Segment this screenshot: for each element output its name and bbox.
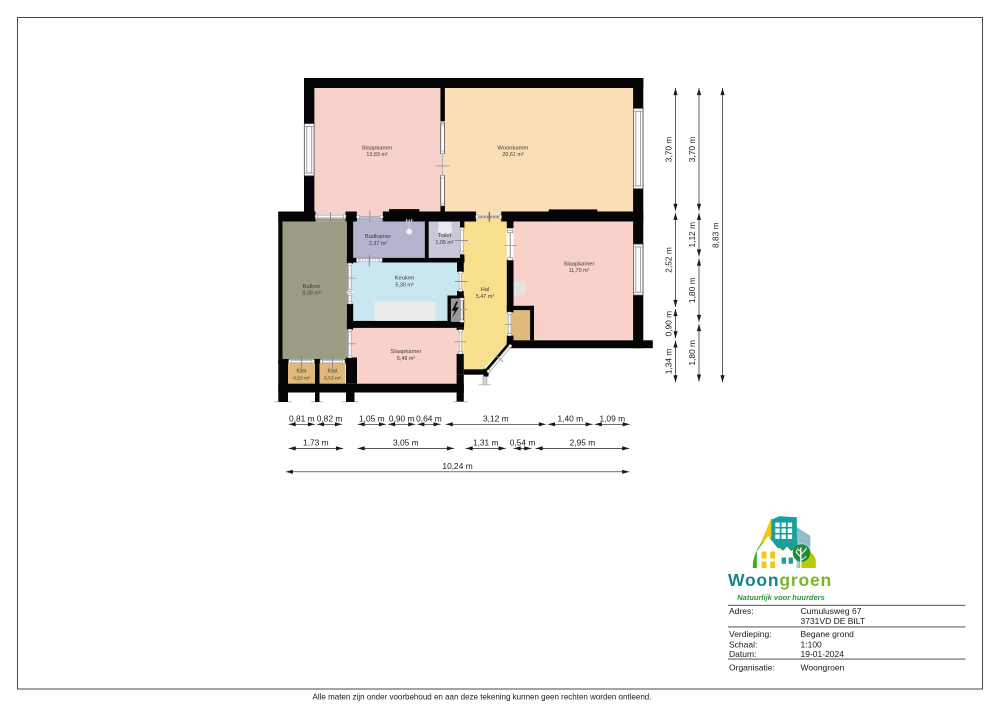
svg-text:10,24 m: 10,24 m bbox=[442, 461, 472, 471]
svg-text:3,12 m: 3,12 m bbox=[483, 413, 509, 423]
svg-text:11,70 m²: 11,70 m² bbox=[569, 268, 590, 274]
svg-text:0,90 m: 0,90 m bbox=[389, 413, 415, 423]
svg-text:Verdieping:: Verdieping: bbox=[729, 629, 772, 639]
svg-text:0,90 m: 0,90 m bbox=[664, 311, 674, 337]
svg-text:Hal: Hal bbox=[481, 287, 490, 293]
svg-text:2,52 m: 2,52 m bbox=[664, 247, 674, 273]
svg-text:1,34 m: 1,34 m bbox=[664, 349, 674, 375]
svg-text:2,95 m: 2,95 m bbox=[570, 438, 596, 448]
svg-text:5,30 m²: 5,30 m² bbox=[395, 282, 413, 288]
svg-text:Slaapkamer: Slaapkamer bbox=[391, 349, 422, 355]
svg-text:8,28 m²: 8,28 m² bbox=[302, 291, 320, 297]
svg-text:0,64 m: 0,64 m bbox=[416, 413, 442, 423]
svg-text:Kast: Kast bbox=[327, 369, 338, 375]
svg-text:1,05 m: 1,05 m bbox=[359, 413, 385, 423]
svg-text:Natuurlijk voor huurders: Natuurlijk voor huurders bbox=[737, 593, 825, 602]
svg-text:Organisatie:: Organisatie: bbox=[729, 663, 775, 673]
svg-text:3,70 m: 3,70 m bbox=[664, 137, 674, 163]
svg-text:Woonkamer: Woonkamer bbox=[497, 146, 528, 152]
svg-text:0,54 m: 0,54 m bbox=[510, 438, 536, 448]
svg-text:1,80 m: 1,80 m bbox=[687, 340, 697, 366]
svg-text:Adres:: Adres: bbox=[729, 606, 754, 616]
svg-text:Badkamer: Badkamer bbox=[365, 234, 391, 240]
svg-text:19-01-2024: 19-01-2024 bbox=[801, 649, 845, 659]
svg-text:1,73 m: 1,73 m bbox=[303, 438, 329, 448]
svg-text:Slaapkamer: Slaapkamer bbox=[362, 146, 393, 152]
svg-text:Woongroen: Woongroen bbox=[728, 570, 832, 590]
svg-text:3,70 m: 3,70 m bbox=[687, 137, 697, 163]
svg-text:1,31 m: 1,31 m bbox=[473, 438, 499, 448]
svg-text:3,05 m: 3,05 m bbox=[393, 438, 419, 448]
svg-text:5,47 m²: 5,47 m² bbox=[476, 294, 494, 300]
svg-text:Slaapkamer: Slaapkamer bbox=[564, 262, 595, 268]
svg-text:0,81 m: 0,81 m bbox=[289, 413, 315, 423]
svg-text:0,53 m²: 0,53 m² bbox=[324, 375, 341, 381]
svg-text:Toilet: Toilet bbox=[438, 233, 452, 239]
svg-text:1,40 m: 1,40 m bbox=[557, 413, 583, 423]
svg-text:8,83 m: 8,83 m bbox=[711, 222, 721, 248]
svg-text:Balkon: Balkon bbox=[303, 284, 321, 290]
svg-text:Alle maten zijn onder voorbeho: Alle maten zijn onder voorbehoud en aan … bbox=[313, 693, 652, 702]
svg-text:Begane grond: Begane grond bbox=[801, 629, 855, 639]
svg-text:13,83 m²: 13,83 m² bbox=[366, 152, 387, 158]
svg-text:2,37 m²: 2,37 m² bbox=[369, 241, 387, 247]
svg-text:Kast: Kast bbox=[296, 369, 307, 375]
svg-text:1,80 m: 1,80 m bbox=[687, 277, 697, 303]
svg-text:5,49 m²: 5,49 m² bbox=[397, 356, 415, 362]
svg-text:Datum:: Datum: bbox=[729, 649, 756, 659]
svg-text:0,82 m: 0,82 m bbox=[317, 413, 343, 423]
svg-text:Keuken: Keuken bbox=[395, 276, 415, 282]
svg-text:0,53 m²: 0,53 m² bbox=[293, 375, 310, 381]
svg-text:3731VD DE BILT: 3731VD DE BILT bbox=[801, 616, 866, 626]
svg-text:Cumulusweg 67: Cumulusweg 67 bbox=[801, 606, 862, 616]
svg-text:1,09 m: 1,09 m bbox=[599, 413, 625, 423]
svg-text:Woongroen: Woongroen bbox=[801, 663, 845, 673]
svg-text:1,12 m: 1,12 m bbox=[687, 222, 697, 248]
svg-text:20,61 m²: 20,61 m² bbox=[502, 152, 523, 158]
svg-text:1,05 m²: 1,05 m² bbox=[435, 240, 453, 246]
